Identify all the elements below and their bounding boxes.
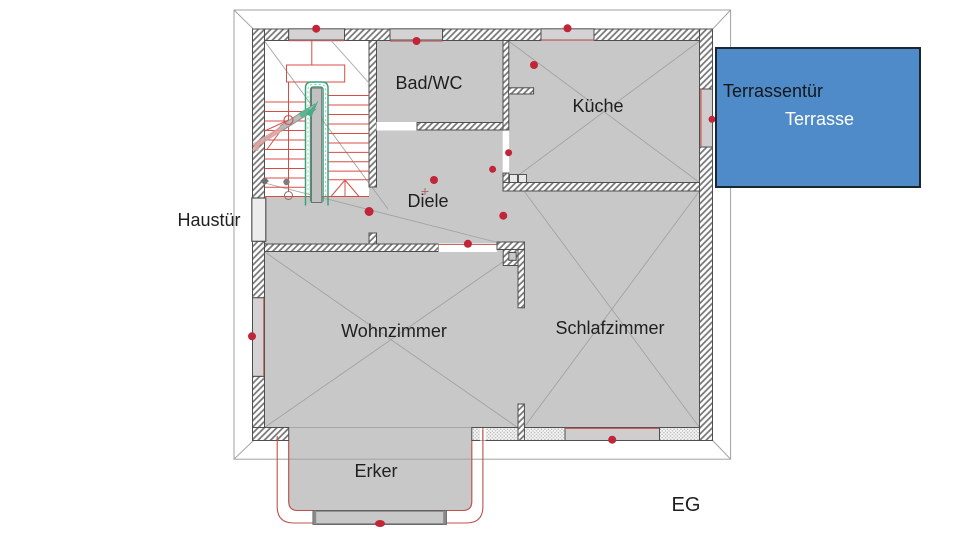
svg-text:Terrasse: Terrasse xyxy=(785,109,854,129)
svg-text:Schlafzimmer: Schlafzimmer xyxy=(555,318,664,338)
svg-text:Küche: Küche xyxy=(572,96,623,116)
svg-text:Erker: Erker xyxy=(354,461,397,481)
svg-text:Terrassentür: Terrassentür xyxy=(723,81,823,101)
svg-text:Diele: Diele xyxy=(407,191,448,211)
svg-text:Wohnzimmer: Wohnzimmer xyxy=(341,321,447,341)
svg-text:Bad/WC: Bad/WC xyxy=(395,73,462,93)
svg-text:EG: EG xyxy=(672,494,701,516)
svg-text:Haustür: Haustür xyxy=(177,210,240,230)
